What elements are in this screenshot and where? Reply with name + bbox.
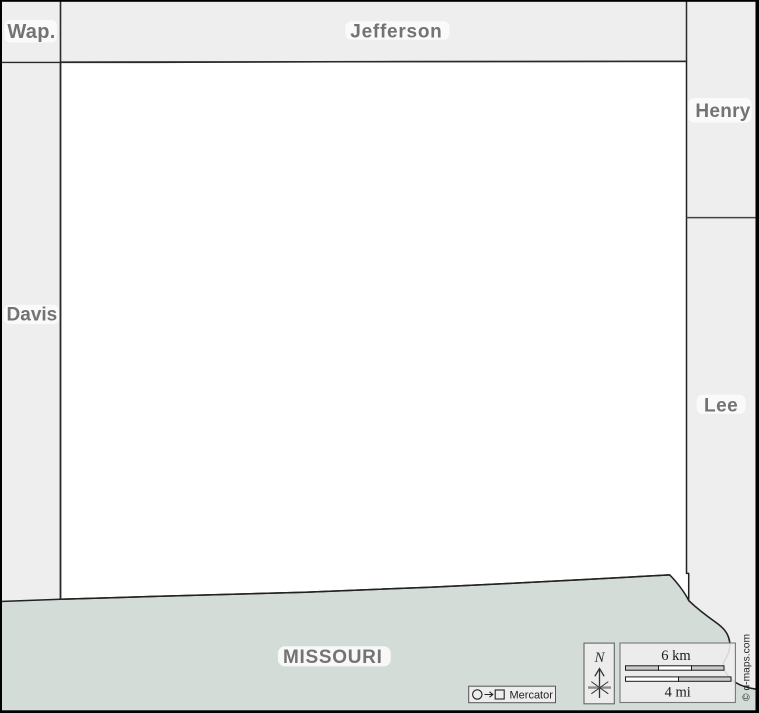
svg-text:Mercator: Mercator: [510, 690, 554, 702]
svg-text:N: N: [593, 650, 605, 666]
svg-text:6 km: 6 km: [661, 648, 691, 664]
svg-text:© d-maps.com: © d-maps.com: [741, 634, 752, 701]
svg-text:MISSOURI: MISSOURI: [283, 647, 383, 668]
svg-text:4 mi: 4 mi: [665, 684, 691, 700]
svg-text:Wap.: Wap.: [7, 21, 55, 43]
svg-text:Lee: Lee: [704, 395, 738, 416]
svg-text:Jefferson: Jefferson: [350, 22, 442, 43]
svg-text:Henry: Henry: [695, 101, 750, 122]
svg-text:Davis: Davis: [7, 304, 58, 325]
